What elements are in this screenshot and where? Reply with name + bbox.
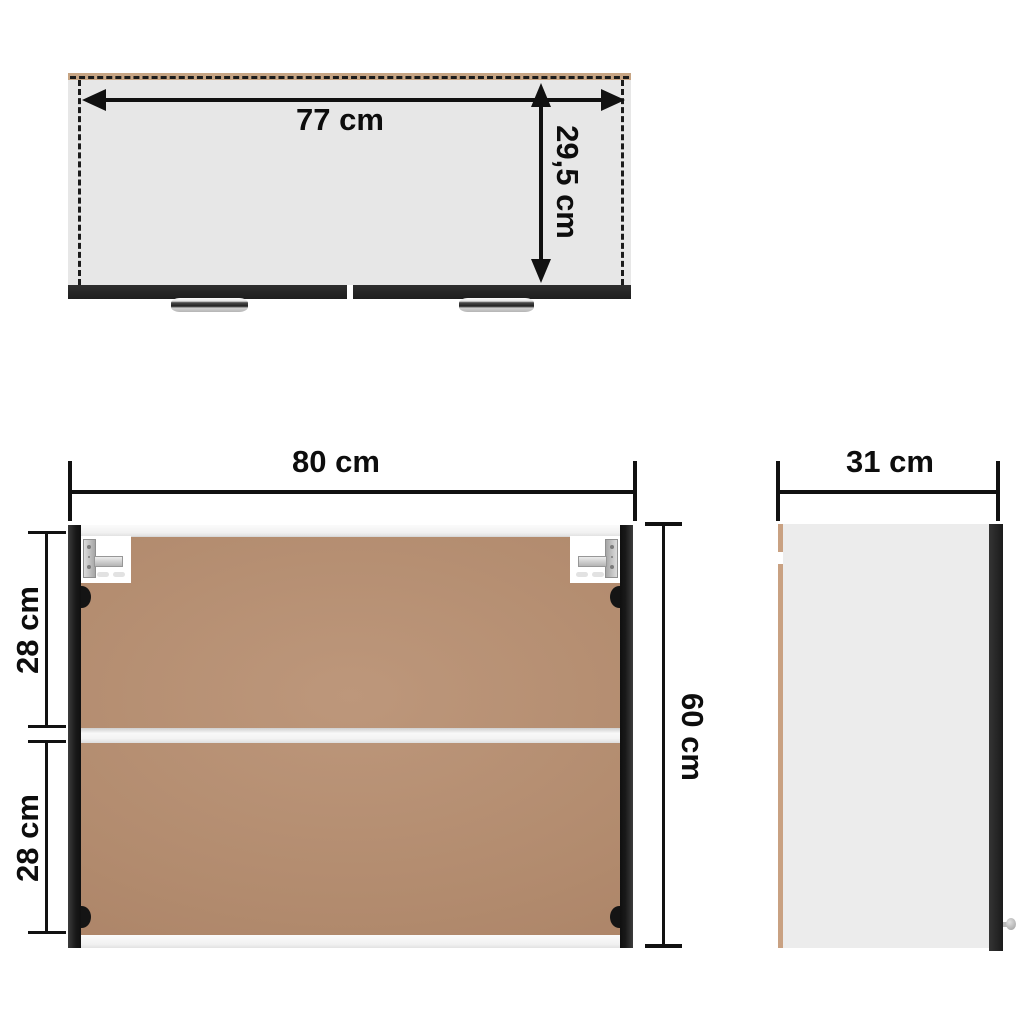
side-mount-knob-icon bbox=[1006, 918, 1016, 930]
hinge-screw-icon bbox=[88, 556, 90, 558]
front-bottom-panel bbox=[81, 935, 620, 948]
arrow-left-head-icon bbox=[82, 89, 106, 111]
front-top-panel bbox=[81, 525, 620, 537]
front-width-right-tick bbox=[633, 461, 637, 521]
upper-compartment-label: 28 cm bbox=[10, 586, 46, 674]
side-front-edge bbox=[989, 524, 1003, 951]
side-view: 31 cm bbox=[740, 430, 1024, 1024]
front-view: 80 cm bbox=[0, 430, 720, 1024]
arrow-line bbox=[539, 91, 543, 275]
top-view-back-dashed-line bbox=[70, 76, 629, 79]
top-view-width-label: 77 cm bbox=[296, 102, 384, 138]
hinge-screw-icon bbox=[87, 565, 91, 569]
top-view: 77 cm 29,5 cm bbox=[0, 0, 700, 330]
arrow-up-head-icon bbox=[531, 83, 551, 107]
lower-compartment-bottom-tick bbox=[28, 931, 66, 934]
side-panel-body bbox=[783, 524, 989, 948]
top-view-left-dashed-line bbox=[78, 80, 81, 285]
top-view-depth-label: 29,5 cm bbox=[549, 125, 585, 239]
hinge-slot bbox=[113, 572, 125, 577]
top-view-handle-left bbox=[171, 298, 248, 312]
side-depth-label: 31 cm bbox=[846, 444, 934, 480]
front-width-left-tick bbox=[68, 461, 72, 521]
hinge-screw-icon bbox=[610, 545, 614, 549]
side-depth-dimension-line bbox=[778, 490, 999, 494]
front-side-panel-right bbox=[620, 525, 633, 948]
lower-compartment-label: 28 cm bbox=[10, 794, 46, 882]
side-back-edge bbox=[778, 524, 783, 948]
top-view-handle-right bbox=[459, 298, 534, 312]
side-back-edge-notch bbox=[778, 552, 783, 564]
height-top-tick bbox=[645, 522, 682, 526]
front-hinge-right bbox=[570, 536, 620, 583]
hinge-slot bbox=[576, 572, 588, 577]
height-bottom-tick bbox=[645, 944, 682, 948]
hinge-screw-icon bbox=[610, 565, 614, 569]
upper-compartment-bottom-tick bbox=[28, 725, 66, 728]
hinge-slot bbox=[592, 572, 604, 577]
arrow-right-head-icon bbox=[601, 89, 625, 111]
top-view-door-edge-left bbox=[68, 285, 347, 299]
hinge-slot bbox=[97, 572, 109, 577]
arrow-down-head-icon bbox=[531, 259, 551, 283]
height-label: 60 cm bbox=[674, 693, 710, 781]
hinge-screw-icon bbox=[87, 545, 91, 549]
front-shelf bbox=[81, 728, 620, 743]
hinge-arm bbox=[578, 556, 607, 567]
side-depth-left-tick bbox=[776, 461, 780, 521]
front-width-dimension-line bbox=[70, 490, 635, 494]
hinge-arm bbox=[94, 556, 123, 567]
hinge-screw-icon bbox=[611, 556, 613, 558]
front-width-label: 80 cm bbox=[292, 444, 380, 480]
side-depth-right-tick bbox=[996, 461, 1000, 521]
lower-compartment-top-tick bbox=[28, 740, 66, 743]
height-dimension-line bbox=[662, 524, 665, 948]
front-hinge-left bbox=[81, 536, 131, 583]
upper-compartment-top-tick bbox=[28, 531, 66, 534]
product-dimension-diagram: 77 cm 29,5 cm 80 cm bbox=[0, 0, 1024, 1024]
front-side-panel-left bbox=[68, 525, 81, 948]
top-view-door-edge-right bbox=[353, 285, 631, 299]
